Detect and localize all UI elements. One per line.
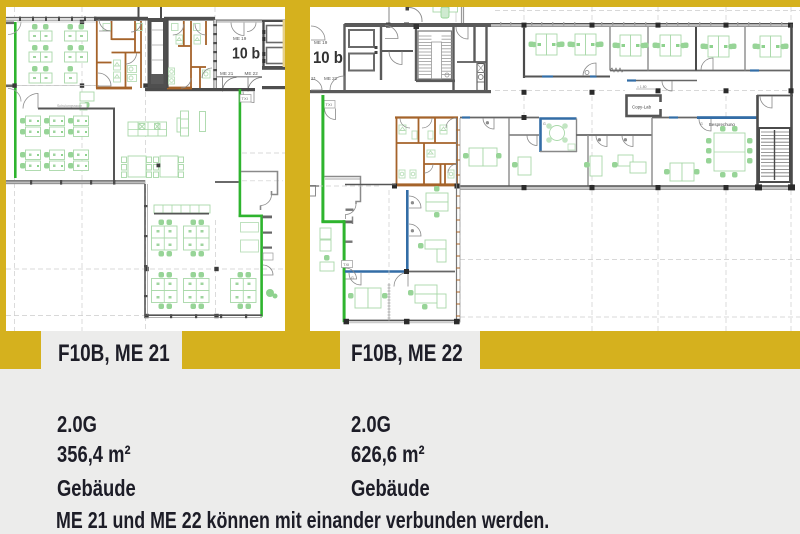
svg-text:TXI: TXI [242,96,248,101]
svg-text:TXI: TXI [343,262,349,267]
svg-text:Copy-Lab: Copy-Lab [632,105,652,110]
svg-text:= 1.80: = 1.80 [637,85,647,89]
svg-text:G: G [411,229,414,233]
svg-text:TXI: TXI [326,102,332,107]
svg-text:G: G [486,121,489,125]
svg-text:ME 21: ME 21 [220,71,234,76]
svg-text:ME 19: ME 19 [233,36,247,41]
svg-text:G: G [543,122,546,126]
svg-text:G: G [624,138,627,142]
svg-text:ME 22: ME 22 [245,71,259,76]
svg-text:G: G [411,201,414,205]
svg-text:10 b: 10 b [313,49,343,67]
svg-text:ME 19: ME 19 [314,40,328,45]
svg-text:10 b: 10 b [232,45,260,63]
svg-text:Schulungsraum: Schulungsraum [57,104,82,108]
svg-text:G: G [598,138,601,142]
svg-text:G: G [700,122,703,126]
